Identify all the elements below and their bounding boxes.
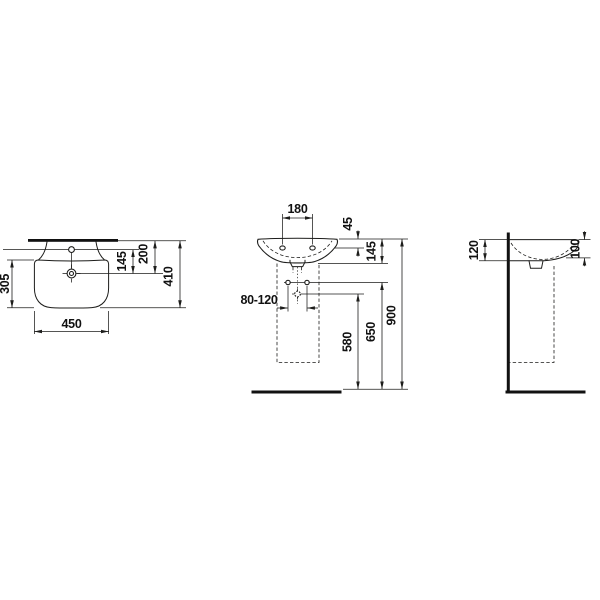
top-view: 305 450 145 200 410	[0, 239, 186, 334]
dim-900-label: 900	[385, 305, 399, 325]
dim-bowl-depth-305: 305	[0, 260, 34, 308]
fixing-hole-left	[280, 246, 285, 250]
drain-crosshair	[292, 289, 364, 300]
dim-supply-spacing-80-120: 80-120	[240, 286, 318, 312]
tap-hole	[69, 247, 75, 253]
dim-basin-width-450: 450	[34, 311, 108, 334]
dim-305-label: 305	[0, 274, 12, 294]
dim-410-label: 410	[162, 266, 176, 286]
supply-hole-right	[305, 280, 309, 284]
fixing-hole-right	[310, 246, 315, 250]
washbasin-technical-drawing: 305 450 145 200 410	[0, 0, 600, 600]
dim-650-label: 650	[364, 322, 378, 342]
basin-neck-right	[96, 242, 105, 260]
dim-450-label: 450	[62, 317, 82, 331]
dim-taphole-drain-145: 145	[115, 250, 133, 274]
dim-145-top-label: 145	[115, 251, 129, 271]
dim-drain-height-580: 580	[341, 294, 359, 389]
dim-180-label: 180	[288, 202, 308, 216]
dim-580-label: 580	[341, 332, 355, 352]
dim-rim-height-900: 900	[385, 239, 403, 389]
dim-rim-holes-45: 45	[341, 217, 358, 256]
front-basin-outline	[257, 238, 337, 263]
side-view: 120 100	[467, 231, 591, 392]
dim-100-label: 100	[569, 238, 583, 258]
dim-45-label: 45	[341, 217, 355, 231]
dim-145-front-label: 145	[365, 241, 379, 261]
pedestal-outline-dashed	[277, 263, 319, 363]
basin-neck-left	[38, 242, 47, 260]
wall-bar	[28, 239, 118, 242]
dim-rear-height-120: 120	[467, 240, 508, 261]
side-pedestal-dashed	[510, 266, 555, 363]
dim-supply-height-650: 650	[364, 283, 382, 390]
dim-80-120-label: 80-120	[240, 293, 277, 307]
drain-outlet	[63, 265, 164, 283]
drawing-canvas: 305 450 145 200 410	[0, 0, 600, 600]
supply-hole-left	[286, 280, 290, 284]
dim-120-label: 120	[467, 240, 481, 260]
dim-200-label: 200	[137, 244, 151, 264]
dim-front-edge-height-100: 100	[566, 231, 591, 266]
front-view: 180 45 145 80-120 580	[240, 202, 408, 392]
